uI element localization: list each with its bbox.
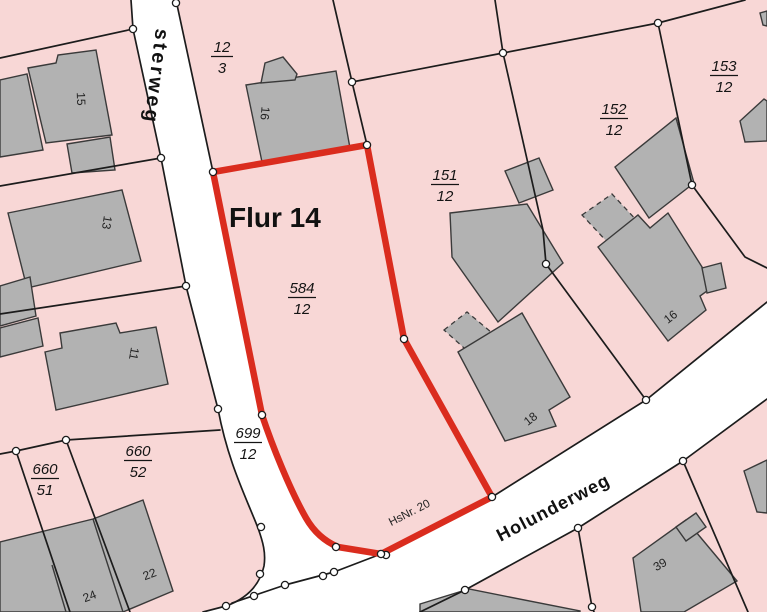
flur-label: Flur 14 (229, 202, 321, 233)
vertex-marker (257, 523, 264, 530)
parcel-denominator: 3 (218, 60, 227, 77)
vertex-marker (642, 396, 649, 403)
building-16-right-annex (702, 263, 726, 293)
vertex-marker (319, 572, 326, 579)
parcel-numerator: 699 (235, 425, 261, 442)
vertex-marker (157, 154, 164, 161)
vertex-marker (679, 457, 686, 464)
vertex-marker (12, 447, 19, 454)
vertex-marker (62, 436, 69, 443)
parcel-denominator: 52 (130, 464, 147, 481)
vertex-marker (488, 493, 495, 500)
parcel-numerator: 660 (125, 443, 151, 460)
vertex-marker (330, 568, 337, 575)
parcel-numerator: 153 (711, 58, 737, 75)
parcel-numerator: 152 (601, 101, 627, 118)
parcel-denominator: 12 (437, 188, 454, 205)
vertex-marker (542, 260, 549, 267)
cadastral-map-view[interactable]: Flur 14 12 3 584 12 151 12 152 12 153 12… (0, 0, 767, 612)
parcel-numerator: 151 (432, 167, 457, 184)
vertex-marker (654, 19, 661, 26)
map-canvas[interactable]: Flur 14 12 3 584 12 151 12 152 12 153 12… (0, 0, 767, 612)
parcel-denominator: 12 (240, 446, 257, 463)
parcel-denominator: 12 (606, 122, 623, 139)
parcel-numerator: 660 (32, 461, 58, 478)
vertex-marker (332, 543, 339, 550)
parcel-denominator: 51 (37, 482, 54, 499)
vertex-marker (588, 603, 595, 610)
vertex-marker (461, 586, 468, 593)
vertex-marker (281, 581, 288, 588)
parcel-denominator: 12 (294, 301, 311, 318)
parcel-numerator: 584 (289, 280, 314, 297)
vertex-marker (499, 49, 506, 56)
vertex-marker (256, 570, 263, 577)
vertex-marker (129, 25, 136, 32)
vertex-marker (182, 282, 189, 289)
vertex-marker (209, 168, 216, 175)
vertex-marker (348, 78, 355, 85)
house-number-15: 15 (74, 92, 88, 106)
vertex-marker (222, 602, 229, 609)
vertex-marker (400, 335, 407, 342)
vertex-marker (688, 181, 695, 188)
vertex-marker (377, 550, 384, 557)
parcel-numerator: 12 (214, 39, 231, 56)
house-number-13: 13 (99, 215, 115, 231)
vertex-marker (574, 524, 581, 531)
vertex-marker (172, 0, 179, 7)
vertex-marker (214, 405, 221, 412)
vertex-marker (250, 592, 257, 599)
vertex-marker (258, 411, 265, 418)
house-number-16-top: 16 (257, 106, 272, 121)
parcel-denominator: 12 (716, 79, 733, 96)
vertex-marker (363, 141, 370, 148)
